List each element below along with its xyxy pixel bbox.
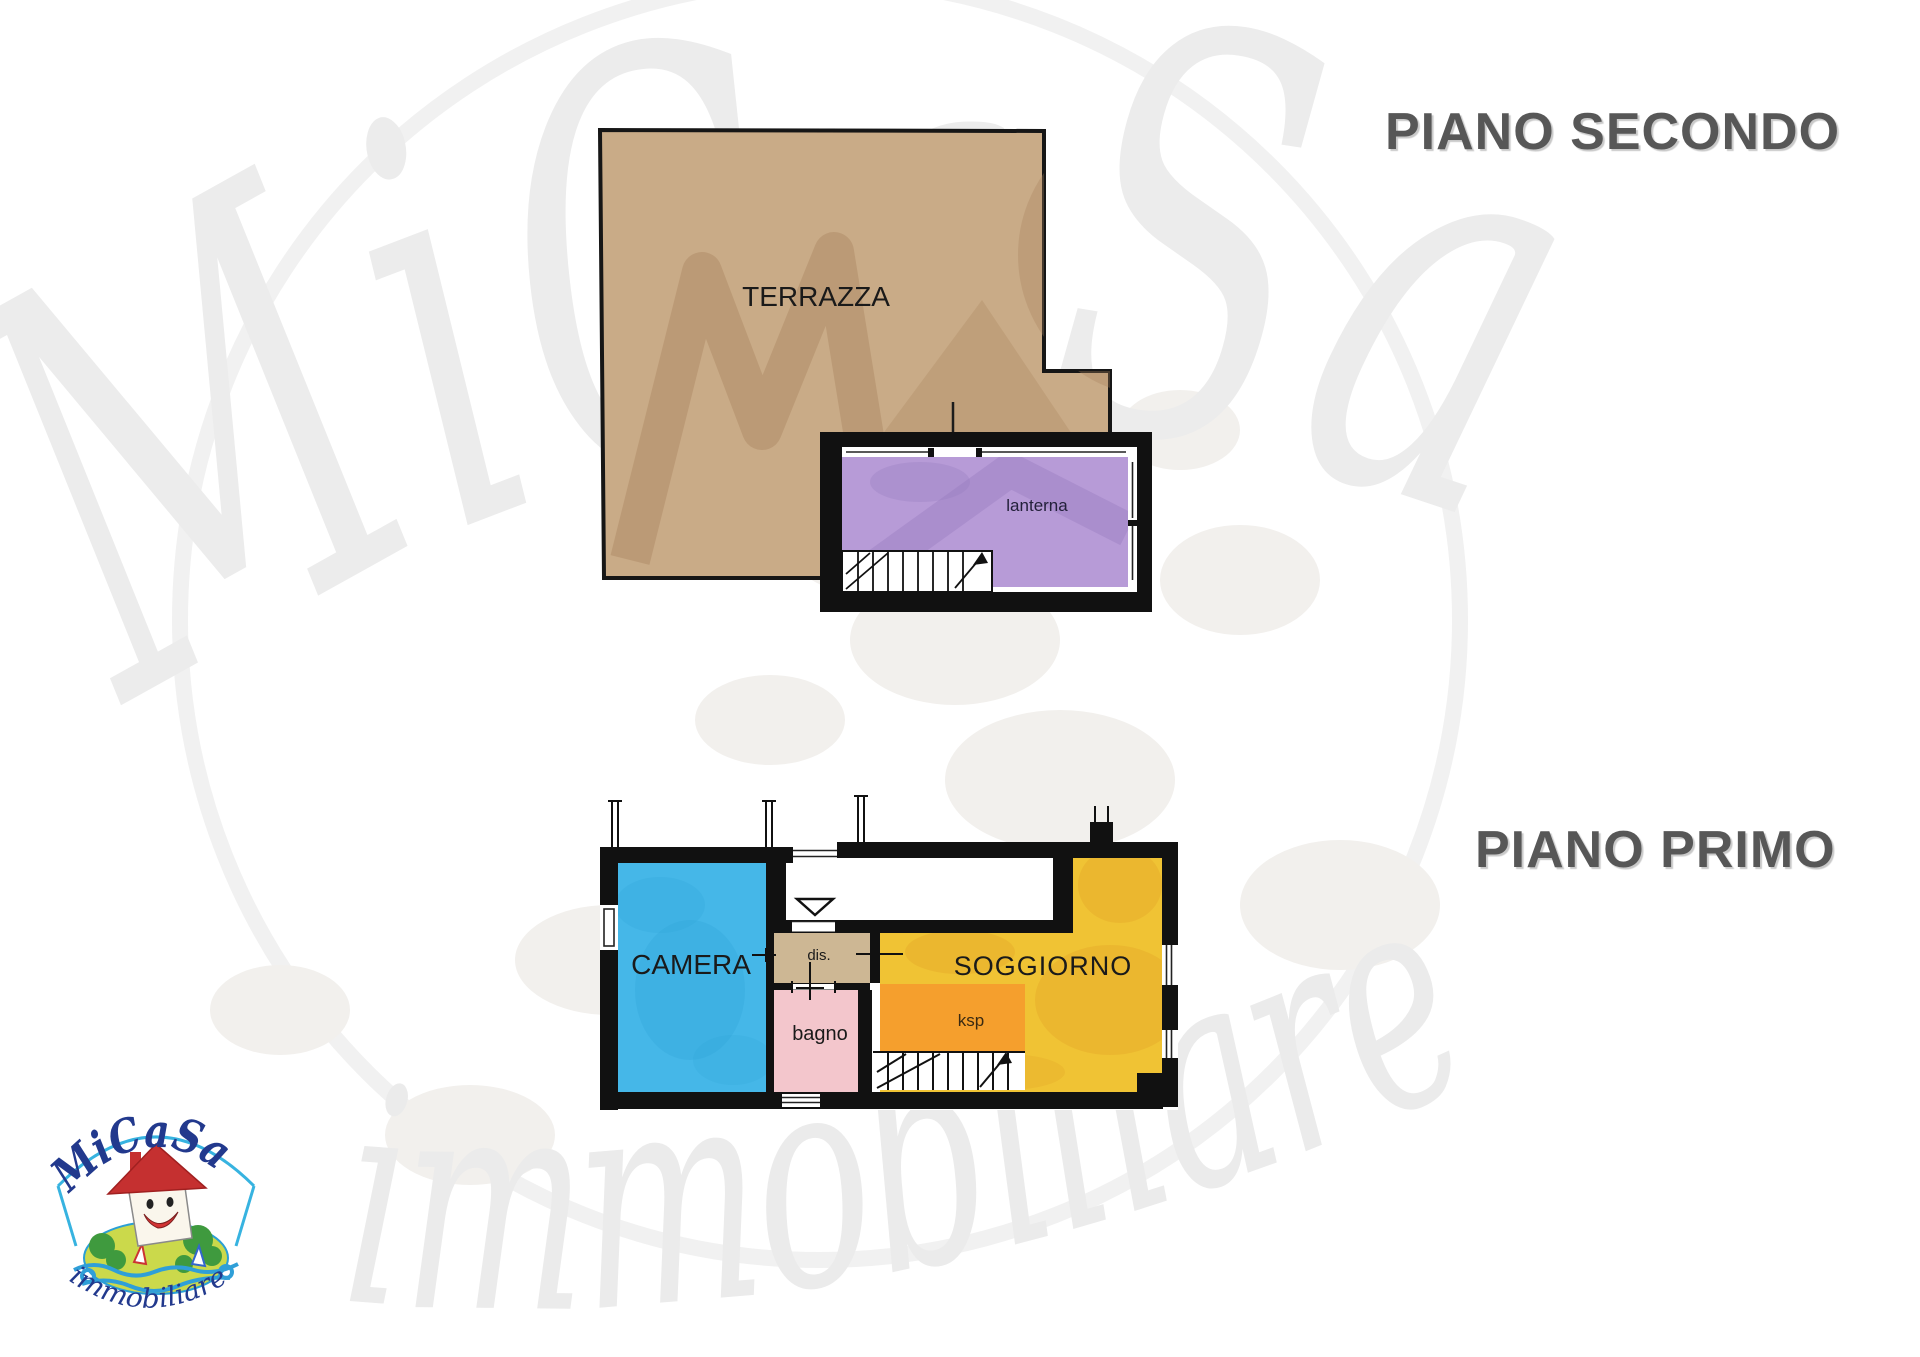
first-floor-plan: CAMERA dis. bagno SOGGIORNO ksp (600, 796, 1185, 1110)
ksp-label: ksp (958, 1011, 984, 1030)
first-floor-title: PIANO PRIMO (1475, 820, 1836, 880)
dis-label: dis. (807, 947, 830, 964)
bagno-label: bagno (792, 1023, 848, 1045)
window-mullion (928, 448, 934, 457)
lanterna-label: lanterna (1006, 496, 1068, 515)
chimney-block (1090, 822, 1113, 842)
agency-logo: MiCaSa immobiliare (39, 1104, 254, 1315)
window (782, 1094, 820, 1107)
door-opening (792, 922, 835, 932)
ksp-area (880, 984, 1025, 1052)
camera-label: CAMERA (631, 949, 751, 980)
window (1162, 945, 1178, 985)
window (1162, 1030, 1178, 1058)
terrazza-label: TERRAZZA (742, 281, 890, 312)
window-mullion (1128, 520, 1137, 526)
lanterna-stairs (842, 551, 992, 592)
second-floor-title: PIANO SECONDO (1385, 102, 1840, 162)
floorplan-canvas: MiCaSa immobiliare TERRAZZA (0, 0, 1920, 1357)
first-floor-stairs (873, 1052, 1025, 1090)
window-mullion (976, 448, 982, 457)
floorplan-page: MiCaSa immobiliare TERRAZZA (0, 0, 1920, 1357)
soggiorno-label: SOGGIORNO (954, 951, 1133, 981)
